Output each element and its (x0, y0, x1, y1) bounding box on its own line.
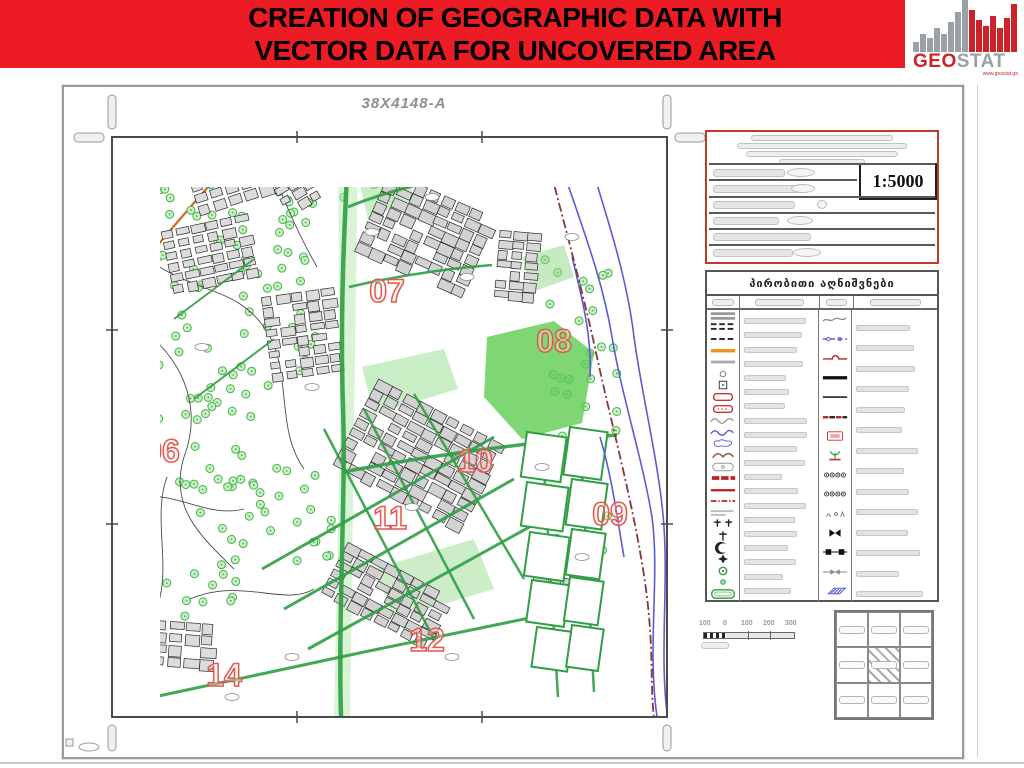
legend-symbols-column-1 (707, 310, 739, 602)
scale-bar-rule (703, 632, 795, 639)
logo-barchart-icon (913, 2, 1017, 52)
legend-symbol-bar-orange (707, 345, 739, 357)
map-title-block: 1:5000 (705, 130, 939, 264)
legend-symbol-blob-blue (707, 438, 739, 450)
legend-symbol-bowtie-gray (819, 562, 851, 581)
map-document-panel: 38X4148-A 0607080910111214 1:5000 პირობი… (62, 85, 964, 759)
zone-label-07: 07 (369, 273, 405, 309)
index-grid-cell (900, 647, 932, 682)
legend-symbol-glyphs (819, 504, 851, 523)
zone-label-06: 06 (144, 433, 180, 469)
title-block-heading-placeholder (707, 135, 937, 165)
map-legend: პირობითი აღნიშვნები (705, 270, 939, 602)
geostat-logo: GEOSTAT www.geostat.ge (905, 0, 1024, 78)
index-grid-cell (900, 612, 932, 647)
zone-label-14: 14 (206, 657, 242, 693)
logo-wordmark: GEOSTAT (913, 52, 1006, 71)
legend-symbol-cross (707, 530, 739, 542)
logo-text-stat: STAT (957, 51, 1006, 72)
legend-symbol-line-black (819, 388, 851, 407)
legend-symbol-dashes-red (707, 472, 739, 484)
legend-symbol-arcs-brown (707, 449, 739, 461)
map-scale-bar: 100 0 100 200 300 (699, 620, 801, 650)
legend-symbol-blob-gray (707, 461, 739, 473)
legend-symbol-squares-link (819, 543, 851, 562)
legend-symbol-circle-sm (707, 368, 739, 380)
legend-title: პირობითი აღნიშვნები (707, 272, 937, 296)
legend-symbol-blue-dash (819, 329, 851, 348)
scale-bar-label: 200 (763, 620, 775, 627)
legend-symbol-bar-black (819, 368, 851, 387)
page-edge-line (977, 85, 978, 757)
legend-symbol-circles4 (819, 485, 851, 504)
zone-label-10: 10 (457, 443, 493, 479)
legend-symbol-wave-gray (819, 310, 851, 329)
legend-symbol-rrect-red2 (707, 403, 739, 415)
zone-label-09: 09 (592, 496, 628, 532)
legend-symbol-dot-green (707, 577, 739, 589)
legend-symbol-circles4 (819, 465, 851, 484)
scale-bar-label: 100 (699, 620, 711, 627)
index-grid-cell (836, 647, 868, 682)
logo-text-geo: GEO (913, 51, 957, 72)
legend-symbol-cross2 (707, 519, 739, 531)
zone-label-08: 08 (536, 323, 572, 359)
legend-symbol-scurve-blue (707, 426, 739, 438)
legend-labels-column-2 (851, 310, 937, 602)
legend-symbol-square-dot (707, 380, 739, 392)
legend-symbol-rrect-red (707, 391, 739, 403)
legend-symbol-star (707, 553, 739, 565)
zone-label-11: 11 (373, 500, 407, 536)
legend-symbol-scurve-gray (707, 414, 739, 426)
slide-title-line1: CREATION OF GEOGRAPHIC DATA WITH (130, 1, 900, 34)
title-banner: CREATION OF GEOGRAPHIC DATA WITH VECTOR … (0, 0, 905, 68)
legend-symbol-box-red (819, 426, 851, 445)
legend-symbol-bars2 (707, 310, 739, 322)
legend-symbol-dash-redblack (819, 407, 851, 426)
index-grid-current-sheet (868, 647, 900, 682)
legend-symbol-bar-red (707, 484, 739, 496)
scale-bar-caption-placeholder (701, 642, 729, 649)
logo-url: www.geostat.ge (983, 71, 1018, 77)
zone-label-12: 12 (409, 622, 445, 658)
slide-bottom-rule (0, 762, 1024, 764)
legend-symbol-dashes2 (707, 322, 739, 334)
legend-symbol-crescent (707, 542, 739, 554)
scale-bar-label: 300 (785, 620, 797, 627)
legend-symbol-para-blue (819, 581, 851, 600)
legend-symbol-bowtie-black (819, 523, 851, 542)
sheet-index-grid (834, 610, 934, 720)
index-grid-cell (868, 612, 900, 647)
index-grid-cell (836, 683, 868, 718)
slide-title-line2: VECTOR DATA FOR UNCOVERED AREA (130, 34, 900, 67)
legend-symbol-circle-dot (707, 565, 739, 577)
map-scale-value: 1:5000 (859, 163, 937, 200)
legend-symbol-plant (819, 446, 851, 465)
legend-symbol-dashes (707, 333, 739, 345)
legend-labels-column-1 (739, 310, 818, 602)
scale-bar-label: 100 (741, 620, 753, 627)
legend-symbol-bar-gray (707, 356, 739, 368)
legend-symbols-column-2 (818, 310, 851, 602)
legend-symbol-red-bump (819, 349, 851, 368)
legend-symbol-text-sm (707, 507, 739, 519)
index-grid-cell (900, 683, 932, 718)
index-grid-cell (836, 612, 868, 647)
scale-bar-label: 0 (723, 620, 727, 627)
index-grid-cell (868, 683, 900, 718)
legend-symbol-dashdot-red (707, 496, 739, 508)
legend-symbol-rrect-green (707, 588, 739, 600)
slide-title: CREATION OF GEOGRAPHIC DATA WITH VECTOR … (130, 1, 900, 67)
legend-column-headers (707, 296, 937, 310)
